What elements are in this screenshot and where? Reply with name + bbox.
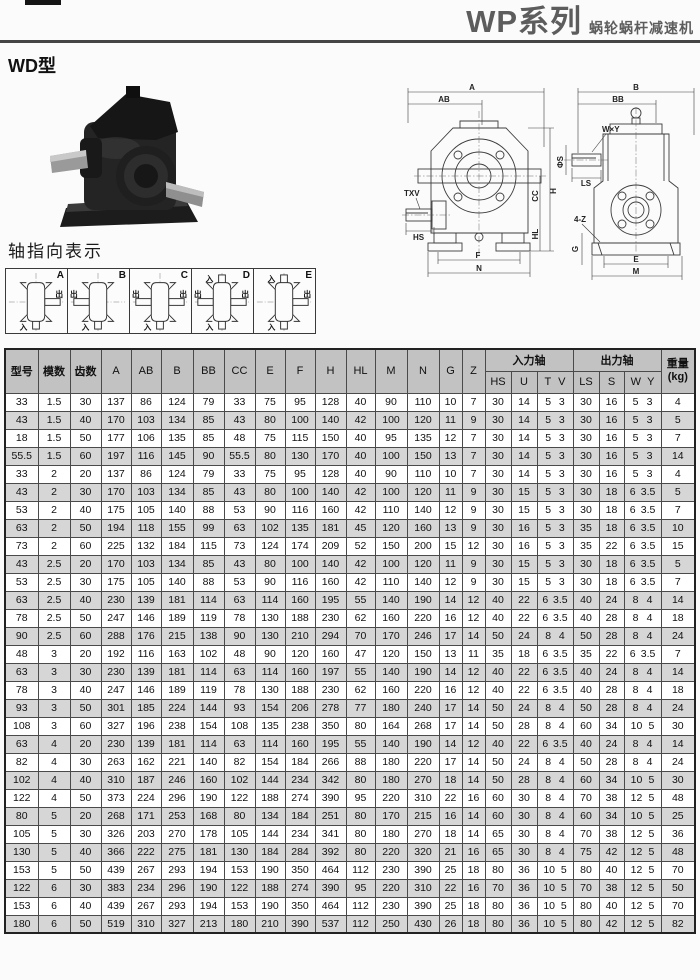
table-cell: 234 <box>285 825 315 843</box>
table-cell: 18 <box>439 825 462 843</box>
col-header-S: S <box>599 371 624 393</box>
table-cell: 50 <box>485 771 511 789</box>
table-cell: 40 <box>346 393 375 411</box>
svg-text:入: 入 <box>82 323 90 332</box>
table-cell: 537 <box>315 915 346 933</box>
table-row: 3322013786124793375951284090110107301453… <box>5 465 695 483</box>
table-cell: 100 <box>375 483 407 501</box>
table-cell: 26 <box>439 915 462 933</box>
table-cell: 310 <box>407 789 439 807</box>
table-row: 4323017010313485438010014042100120119301… <box>5 483 695 501</box>
table-cell: 180 <box>375 699 407 717</box>
table-cell: 251 <box>315 807 346 825</box>
table-cell: 60 <box>573 807 599 825</box>
table-cell: 50 <box>485 699 511 717</box>
table-cell: 130 <box>5 843 38 861</box>
table-row: 632.540230139181114631141601955514019014… <box>5 591 695 609</box>
dim-G: G <box>571 246 580 252</box>
table-cell: 53 <box>537 393 573 411</box>
table-cell: 28 <box>599 627 624 645</box>
table-cell: 70 <box>573 825 599 843</box>
table-cell: 9 <box>462 555 485 573</box>
table-cell: 102 <box>255 519 285 537</box>
table-cell: 267 <box>131 861 161 879</box>
table-cell: 197 <box>315 663 346 681</box>
table-cell: 250 <box>375 915 407 933</box>
table-cell: 40 <box>485 663 511 681</box>
axis-diagram-letter: E <box>305 270 312 281</box>
table-cell: 30 <box>511 807 537 825</box>
col-group-output-shaft: 出力轴 <box>573 349 661 371</box>
table-cell: 184 <box>255 843 285 861</box>
col-header-H: H <box>315 349 346 393</box>
table-cell: 21 <box>439 843 462 861</box>
table-cell: 30 <box>70 825 101 843</box>
table-cell: 110 <box>375 573 407 591</box>
table-cell: 222 <box>131 843 161 861</box>
table-cell: 187 <box>131 771 161 789</box>
table-row: 331.530137861247933759512840901101073014… <box>5 393 695 411</box>
table-cell: 84 <box>624 609 661 627</box>
table-cell: 80 <box>255 555 285 573</box>
table-cell: 439 <box>101 861 131 879</box>
table-cell: 88 <box>193 573 224 591</box>
table-cell: 134 <box>161 411 193 429</box>
table-cell: 95 <box>375 429 407 447</box>
col-header-M: M <box>375 349 407 393</box>
table-cell: 40 <box>573 591 599 609</box>
table-cell: 30 <box>511 843 537 861</box>
table-cell: 62 <box>346 681 375 699</box>
table-cell: 90 <box>193 447 224 465</box>
table-cell: 30 <box>573 447 599 465</box>
table-cell: 42 <box>346 555 375 573</box>
table-cell: 48 <box>661 789 695 807</box>
table-cell: 103 <box>131 483 161 501</box>
table-cell: 70 <box>661 897 695 915</box>
table-cell: 78 <box>224 681 255 699</box>
table-cell: 17 <box>439 753 462 771</box>
table-cell: 13 <box>439 645 462 663</box>
svg-text:出: 出 <box>241 289 249 299</box>
table-cell: 160 <box>375 681 407 699</box>
table-cell: 225 <box>101 537 131 555</box>
table-cell: 12 <box>462 609 485 627</box>
table-row: 1083603271962381541081352383508016426817… <box>5 717 695 735</box>
table-cell: 171 <box>131 807 161 825</box>
table-row: 431.540170103134854380100140421001201193… <box>5 411 695 429</box>
table-cell: 90 <box>375 393 407 411</box>
table-cell: 53 <box>624 411 661 429</box>
table-cell: 80 <box>346 825 375 843</box>
table-cell: 180 <box>224 915 255 933</box>
table-cell: 122 <box>224 879 255 897</box>
table-cell: 90 <box>255 573 285 591</box>
table-row: 902.560288176215138901302102947017024617… <box>5 627 695 645</box>
table-cell: 40 <box>599 861 624 879</box>
table-cell: 439 <box>101 897 131 915</box>
table-cell: 16 <box>599 429 624 447</box>
table-cell: 50 <box>573 627 599 645</box>
table-cell: 14 <box>462 627 485 645</box>
table-cell: 50 <box>70 519 101 537</box>
table-cell: 50 <box>485 627 511 645</box>
table-row: 1226303832342961901221882743909522031022… <box>5 879 695 897</box>
table-cell: 184 <box>161 537 193 555</box>
table-cell: 63 <box>5 591 38 609</box>
table-cell: 40 <box>485 591 511 609</box>
table-cell: 24 <box>599 735 624 753</box>
table-cell: 144 <box>255 771 285 789</box>
table-cell: 40 <box>346 429 375 447</box>
dim-AB: AB <box>438 95 450 104</box>
table-cell: 140 <box>375 735 407 753</box>
table-cell: 119 <box>193 609 224 627</box>
table-cell: 12 <box>439 429 462 447</box>
table-cell: 30 <box>70 753 101 771</box>
table-cell: 190 <box>193 789 224 807</box>
table-cell: 7 <box>661 429 695 447</box>
table-cell: 53 <box>624 429 661 447</box>
table-cell: 75 <box>255 465 285 483</box>
axis-diagram-letter: D <box>243 270 250 281</box>
table-cell: 24 <box>599 663 624 681</box>
table-cell: 209 <box>315 537 346 555</box>
svg-text:入: 入 <box>268 275 276 284</box>
table-cell: 10 <box>661 519 695 537</box>
table-cell: 20 <box>70 645 101 663</box>
table-cell: 60 <box>573 717 599 735</box>
table-row: 1055303262032701781051442343418018027018… <box>5 825 695 843</box>
table-cell: 48 <box>224 429 255 447</box>
table-cell: 230 <box>375 861 407 879</box>
table-cell: 135 <box>161 429 193 447</box>
table-cell: 220 <box>375 789 407 807</box>
table-cell: 28 <box>599 753 624 771</box>
table-cell: 288 <box>101 627 131 645</box>
table-cell: 115 <box>193 537 224 555</box>
table-cell: 392 <box>315 843 346 861</box>
table-cell: 140 <box>161 501 193 519</box>
table-cell: 35 <box>485 645 511 663</box>
table-cell: 120 <box>407 555 439 573</box>
table-cell: 90 <box>255 501 285 519</box>
table-cell: 18 <box>661 609 695 627</box>
table-cell: 12 <box>462 537 485 555</box>
table-cell: 390 <box>407 897 439 915</box>
table-cell: 63.5 <box>537 735 573 753</box>
table-row: 1224503732242961901221882743909522031022… <box>5 789 695 807</box>
table-cell: 50 <box>661 879 695 897</box>
table-cell: 85 <box>193 429 224 447</box>
technical-drawing: A AB TXV HS <box>398 83 700 281</box>
table-cell: 181 <box>315 519 346 537</box>
table-cell: 5 <box>661 555 695 573</box>
table-cell: 33 <box>224 393 255 411</box>
table-cell: 34 <box>599 807 624 825</box>
axis-diagram-a: 入出A <box>5 268 68 334</box>
table-cell: 85 <box>193 483 224 501</box>
table-cell: 105 <box>624 771 661 789</box>
table-cell: 73 <box>224 537 255 555</box>
table-cell: 53 <box>537 501 573 519</box>
table-cell: 40 <box>485 681 511 699</box>
col-header-LS: LS <box>573 371 599 393</box>
table-cell: 125 <box>624 843 661 861</box>
table-cell: 310 <box>131 915 161 933</box>
table-cell: 9 <box>462 573 485 591</box>
table-cell: 139 <box>131 663 161 681</box>
table-cell: 42 <box>346 483 375 501</box>
table-cell: 84 <box>537 717 573 735</box>
table-cell: 230 <box>101 735 131 753</box>
axis-diagram-c: 入出出C <box>129 268 192 334</box>
table-cell: 80 <box>573 897 599 915</box>
table-cell: 11 <box>462 645 485 663</box>
table-cell: 153 <box>224 897 255 915</box>
table-cell: 84 <box>537 699 573 717</box>
table-cell: 7 <box>661 573 695 591</box>
table-cell: 102 <box>193 645 224 663</box>
table-cell: 110 <box>407 393 439 411</box>
table-cell: 170 <box>101 411 131 429</box>
table-cell: 160 <box>193 771 224 789</box>
dim-TXV: TXV <box>404 189 420 198</box>
table-cell: 162 <box>131 753 161 771</box>
table-cell: 50 <box>573 699 599 717</box>
table-cell: 12 <box>439 501 462 519</box>
table-cell: 16 <box>511 519 537 537</box>
dim-A: A <box>469 83 475 92</box>
table-cell: 93 <box>224 699 255 717</box>
table-cell: 3 <box>38 645 70 663</box>
table-cell: 16 <box>439 609 462 627</box>
table-cell: 30 <box>485 555 511 573</box>
table-cell: 90 <box>5 627 38 645</box>
table-cell: 50 <box>70 699 101 717</box>
table-row: 5324017510514088539011616042110140129301… <box>5 501 695 519</box>
table-row: 6333023013918111463114160197551401901412… <box>5 663 695 681</box>
table-cell: 16 <box>462 879 485 897</box>
table-cell: 5 <box>661 411 695 429</box>
col-header-B: B <box>161 349 193 393</box>
table-cell: 150 <box>375 537 407 555</box>
table-cell: 70 <box>573 789 599 807</box>
table-cell: 115 <box>285 429 315 447</box>
series-title: WP系列 <box>466 6 582 37</box>
dim-E: E <box>633 255 639 264</box>
table-row: 7834024714618911978130188230621602201612… <box>5 681 695 699</box>
table-cell: 112 <box>346 915 375 933</box>
table-cell: 2 <box>38 483 70 501</box>
table-cell: 84 <box>624 753 661 771</box>
table-row: 4832019211616310248901201604712015013113… <box>5 645 695 663</box>
table-cell: 82 <box>5 753 38 771</box>
table-cell: 30 <box>485 411 511 429</box>
table-cell: 24 <box>511 753 537 771</box>
table-cell: 130 <box>255 681 285 699</box>
table-cell: 189 <box>161 609 193 627</box>
table-row: 6325019411815599631021351814512016013930… <box>5 519 695 537</box>
table-cell: 310 <box>101 771 131 789</box>
table-cell: 63.5 <box>624 555 661 573</box>
table-cell: 18 <box>462 897 485 915</box>
table-cell: 154 <box>255 699 285 717</box>
table-cell: 40 <box>70 501 101 519</box>
table-cell: 18 <box>462 861 485 879</box>
table-cell: 253 <box>161 807 193 825</box>
table-cell: 11 <box>439 483 462 501</box>
table-cell: 53 <box>537 537 573 555</box>
model-type-label: WD型 <box>8 52 56 78</box>
table-cell: 112 <box>346 861 375 879</box>
table-cell: 293 <box>161 861 193 879</box>
table-cell: 140 <box>315 411 346 429</box>
col-header-CC: CC <box>224 349 255 393</box>
table-cell: 7 <box>462 465 485 483</box>
dim-LS: LS <box>581 179 592 188</box>
table-cell: 80 <box>485 897 511 915</box>
table-cell: 10 <box>439 393 462 411</box>
table-cell: 25 <box>439 861 462 879</box>
table-cell: 14 <box>511 465 537 483</box>
dim-4Z: 4-Z <box>574 215 586 224</box>
dim-BB: BB <box>612 95 624 104</box>
table-cell: 125 <box>624 879 661 897</box>
table-cell: 103 <box>131 411 161 429</box>
table-cell: 38 <box>599 789 624 807</box>
table-cell: 30 <box>485 573 511 591</box>
table-cell: 105 <box>131 573 161 591</box>
table-cell: 390 <box>315 879 346 897</box>
table-cell: 118 <box>131 519 161 537</box>
table-cell: 1.5 <box>38 447 70 465</box>
table-cell: 7 <box>462 429 485 447</box>
table-cell: 2 <box>38 465 70 483</box>
col-header-HL: HL <box>346 349 375 393</box>
table-cell: 15 <box>511 501 537 519</box>
table-cell: 139 <box>131 735 161 753</box>
table-cell: 114 <box>193 735 224 753</box>
table-cell: 188 <box>285 609 315 627</box>
table-row: 782.550247146189119781301882306216022016… <box>5 609 695 627</box>
table-cell: 175 <box>101 501 131 519</box>
table-cell: 9 <box>462 483 485 501</box>
gearbox-glyph: 入出 <box>7 272 65 332</box>
table-cell: 20 <box>70 735 101 753</box>
table-cell: 284 <box>285 843 315 861</box>
table-cell: 90 <box>375 465 407 483</box>
table-cell: 53 <box>537 447 573 465</box>
table-cell: 132 <box>131 537 161 555</box>
table-cell: 247 <box>101 681 131 699</box>
svg-text:入: 入 <box>268 323 276 332</box>
table-cell: 40 <box>573 609 599 627</box>
table-cell: 5 <box>38 825 70 843</box>
col-header-model: 型号 <box>5 349 38 393</box>
table-cell: 194 <box>101 519 131 537</box>
table-cell: 210 <box>255 915 285 933</box>
table-cell: 18 <box>599 573 624 591</box>
table-cell: 40 <box>70 591 101 609</box>
col-header-teeth: 齿数 <box>70 349 101 393</box>
table-cell: 105 <box>537 915 573 933</box>
table-cell: 160 <box>315 573 346 591</box>
table-row: 1024403101872461601021442343428018027018… <box>5 771 695 789</box>
axis-section-title: 轴指向表示 <box>8 237 103 262</box>
table-cell: 120 <box>407 483 439 501</box>
table-cell: 60 <box>70 627 101 645</box>
table-cell: 519 <box>101 915 131 933</box>
table-cell: 82 <box>224 753 255 771</box>
table-cell: 5 <box>38 861 70 879</box>
table-cell: 247 <box>101 609 131 627</box>
table-cell: 224 <box>131 789 161 807</box>
table-cell: 30 <box>661 771 695 789</box>
table-cell: 1.5 <box>38 393 70 411</box>
table-cell: 22 <box>511 609 537 627</box>
table-cell: 4 <box>38 771 70 789</box>
table-cell: 88 <box>346 753 375 771</box>
table-cell: 213 <box>193 915 224 933</box>
table-row: 55.51.5601971161459055.58013017040100150… <box>5 447 695 465</box>
table-cell: 36 <box>511 861 537 879</box>
table-cell: 84 <box>624 681 661 699</box>
table-cell: 464 <box>315 897 346 915</box>
table-cell: 80 <box>5 807 38 825</box>
svg-text:入: 入 <box>144 323 152 332</box>
table-cell: 84 <box>537 789 573 807</box>
svg-text:出: 出 <box>179 289 187 299</box>
svg-text:出: 出 <box>303 289 311 299</box>
table-cell: 140 <box>407 501 439 519</box>
table-cell: 90 <box>224 627 255 645</box>
table-cell: 2 <box>38 501 70 519</box>
table-cell: 63 <box>5 735 38 753</box>
table-cell: 17 <box>439 699 462 717</box>
table-cell: 75 <box>255 429 285 447</box>
table-cell: 4 <box>38 735 70 753</box>
table-cell: 4 <box>38 753 70 771</box>
table-cell: 53 <box>624 465 661 483</box>
table-cell: 20 <box>70 555 101 573</box>
table-cell: 144 <box>193 699 224 717</box>
table-cell: 140 <box>315 483 346 501</box>
table-cell: 86 <box>131 465 161 483</box>
table-cell: 6 <box>38 915 70 933</box>
table-row: 8243026316222114082154184266881802201714… <box>5 753 695 771</box>
table-cell: 15 <box>511 573 537 591</box>
table-cell: 43 <box>5 555 38 573</box>
table-cell: 296 <box>161 789 193 807</box>
table-cell: 105 <box>537 861 573 879</box>
page-header: WP系列 蜗轮蜗杆减速机 <box>466 6 694 37</box>
table-cell: 120 <box>285 645 315 663</box>
table-cell: 84 <box>537 771 573 789</box>
spec-table: 型号 模数 齿数 A AB B BB CC E F H HL M N G Z 入… <box>4 348 696 934</box>
table-cell: 82 <box>661 915 695 933</box>
table-cell: 53 <box>537 573 573 591</box>
table-cell: 240 <box>407 699 439 717</box>
table-cell: 18 <box>439 771 462 789</box>
table-cell: 293 <box>161 897 193 915</box>
table-row: 1536404392672931941531903504641122303902… <box>5 897 695 915</box>
table-cell: 267 <box>131 897 161 915</box>
col-header-E: E <box>255 349 285 393</box>
table-cell: 130 <box>255 609 285 627</box>
table-cell: 14 <box>439 663 462 681</box>
table-cell: 78 <box>224 609 255 627</box>
